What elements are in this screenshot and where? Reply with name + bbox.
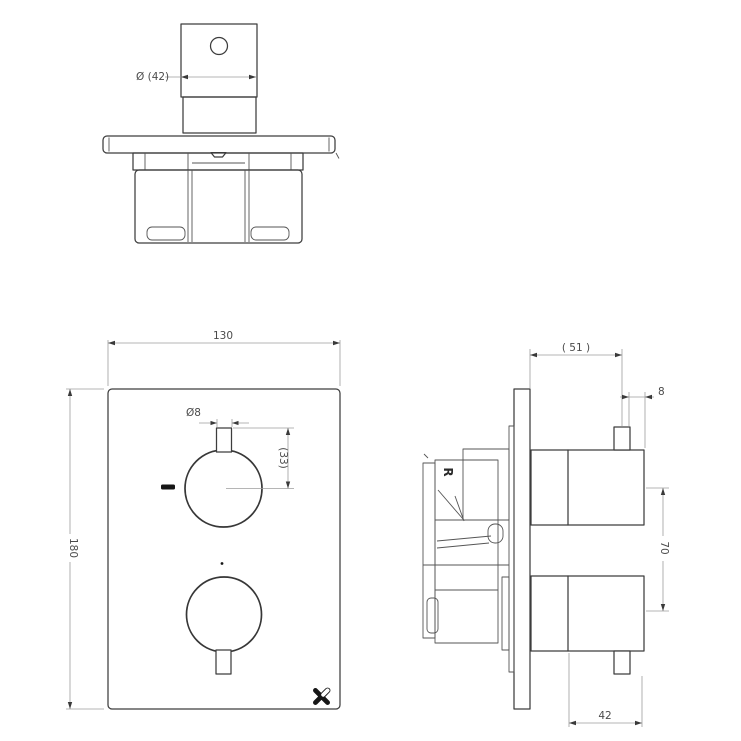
dim-plate-to-lever: ( 51 ) (530, 342, 622, 426)
dim-lever-diameter: Ø8 (186, 407, 249, 427)
top-view: Ø (42) (103, 24, 339, 243)
handle-body (181, 24, 257, 97)
handle-top-profile (181, 24, 257, 133)
body-lower-spigot (502, 577, 509, 650)
dim-lever-diameter-label: Ø8 (186, 407, 201, 419)
rough-in-body-side: R (423, 449, 509, 650)
index-marker-dash (161, 485, 175, 490)
flow-knob (187, 577, 262, 674)
dim-plate-height-label: 180 (67, 538, 79, 558)
upper-knob-profile (531, 450, 644, 525)
drawing-sheet: Ø (42) 130 (0, 0, 741, 741)
dim-handle-diameter-label: Ø (42) (136, 71, 169, 83)
front-view: 130 180 Ø8 (33) (66, 330, 340, 712)
rough-in-body-top (133, 153, 303, 243)
index-marker-dot (221, 562, 224, 565)
dim-knob-depth: 42 (569, 653, 642, 727)
temperature-knob (185, 428, 262, 527)
dim-lever-to-center-label: (33) (277, 447, 289, 469)
body-main-block (435, 460, 498, 643)
upper-knob-lever (217, 428, 232, 452)
plate-lip (509, 426, 514, 672)
dim-knob-depth-label: 42 (598, 710, 611, 722)
plate-stray-tick (336, 153, 339, 159)
box-foot-left (147, 227, 185, 240)
dim-plate-width: 130 (108, 330, 340, 386)
upper-lever-profile (614, 427, 630, 450)
wall-plate-side (509, 389, 530, 709)
side-view: R ( 51 ) (423, 342, 670, 727)
body-back-strip (423, 463, 435, 638)
body-slot (427, 598, 438, 633)
body-mark-label: R (441, 467, 455, 476)
plate-edge (103, 136, 335, 153)
dim-plate-to-lever-label: ( 51 ) (562, 342, 590, 354)
body-clip (488, 524, 503, 543)
box-foot-right (251, 227, 289, 240)
dim-plate-width-label: 130 (213, 330, 233, 342)
rough-in-box (135, 170, 302, 243)
plate-profile (514, 389, 530, 709)
dim-plate-height: 180 (66, 389, 104, 709)
lower-knob-side (531, 576, 644, 674)
dim-handle-diameter: Ø (42) (136, 71, 256, 83)
dim-knob-centers-label: 70 (658, 541, 670, 554)
lower-lever-profile (614, 651, 630, 674)
handle-neck (183, 97, 256, 133)
dim-knob-centers: 70 (646, 488, 670, 611)
upper-knob-side (531, 427, 644, 525)
lower-knob (187, 577, 262, 652)
dim-lever-to-center: (33) (226, 428, 294, 489)
lower-knob-profile (531, 576, 644, 651)
dim-lever-protrusion-label: 8 (658, 386, 665, 398)
crosswater-x-logo-icon (306, 681, 337, 712)
lower-knob-lever (216, 650, 231, 674)
technical-drawing-canvas: Ø (42) 130 (0, 0, 741, 741)
handle-screw-hole (211, 38, 228, 55)
